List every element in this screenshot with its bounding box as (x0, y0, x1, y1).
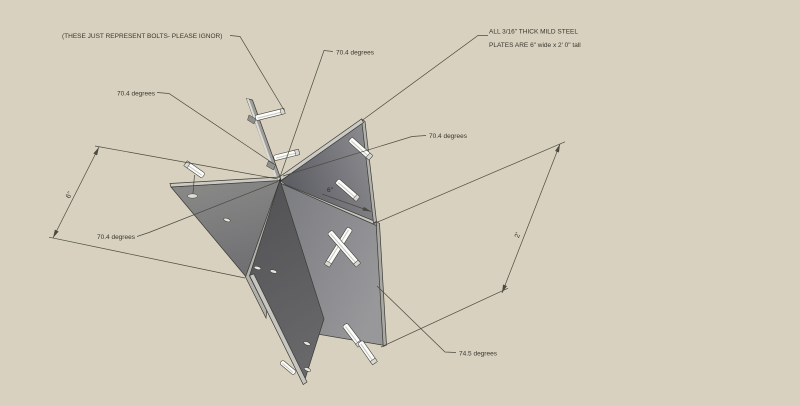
extension-line (95, 146, 278, 179)
angle-label-bottom-right: 74.5 degrees (459, 351, 498, 358)
leader-line-angle-bottom-right (377, 286, 456, 353)
extension-line (49, 237, 245, 278)
extension-line (373, 142, 565, 224)
washer (188, 194, 198, 198)
dimension-text-6in-inner: 6" (327, 187, 334, 194)
drawing-canvas: (THESE JUST REPRESENT BOLTS- PLEASE IGNO… (0, 0, 800, 406)
angle-label-right: 70.4 degrees (429, 133, 468, 140)
extension-line (381, 288, 508, 347)
angle-label-left: 70.4 degrees (117, 91, 156, 98)
leader-line-angle-left (157, 93, 274, 165)
leader-line-material-note (362, 36, 488, 121)
bolt (255, 108, 285, 121)
cad-viewport: (THESE JUST REPRESENT BOLTS- PLEASE IGNO… (0, 0, 800, 406)
dimension-line-2ft (502, 144, 560, 293)
material-note-line1: ALL 3/16" THICK MILD STEEL (489, 29, 578, 36)
dimension-text-2ft: 2' (514, 232, 522, 239)
hub-point (279, 179, 281, 181)
material-note-line2: PLATES ARE 6" wide x 2' 0" tall (489, 42, 581, 49)
leader-line-bolts-note (230, 36, 284, 111)
bolts-note-label: (THESE JUST REPRESENT BOLTS- PLEASE IGNO… (62, 33, 222, 40)
dimension-line-6in (53, 147, 99, 238)
angle-label-bottom-left: 70.4 degrees (97, 234, 136, 241)
angle-label-top: 70.4 degrees (336, 50, 375, 57)
